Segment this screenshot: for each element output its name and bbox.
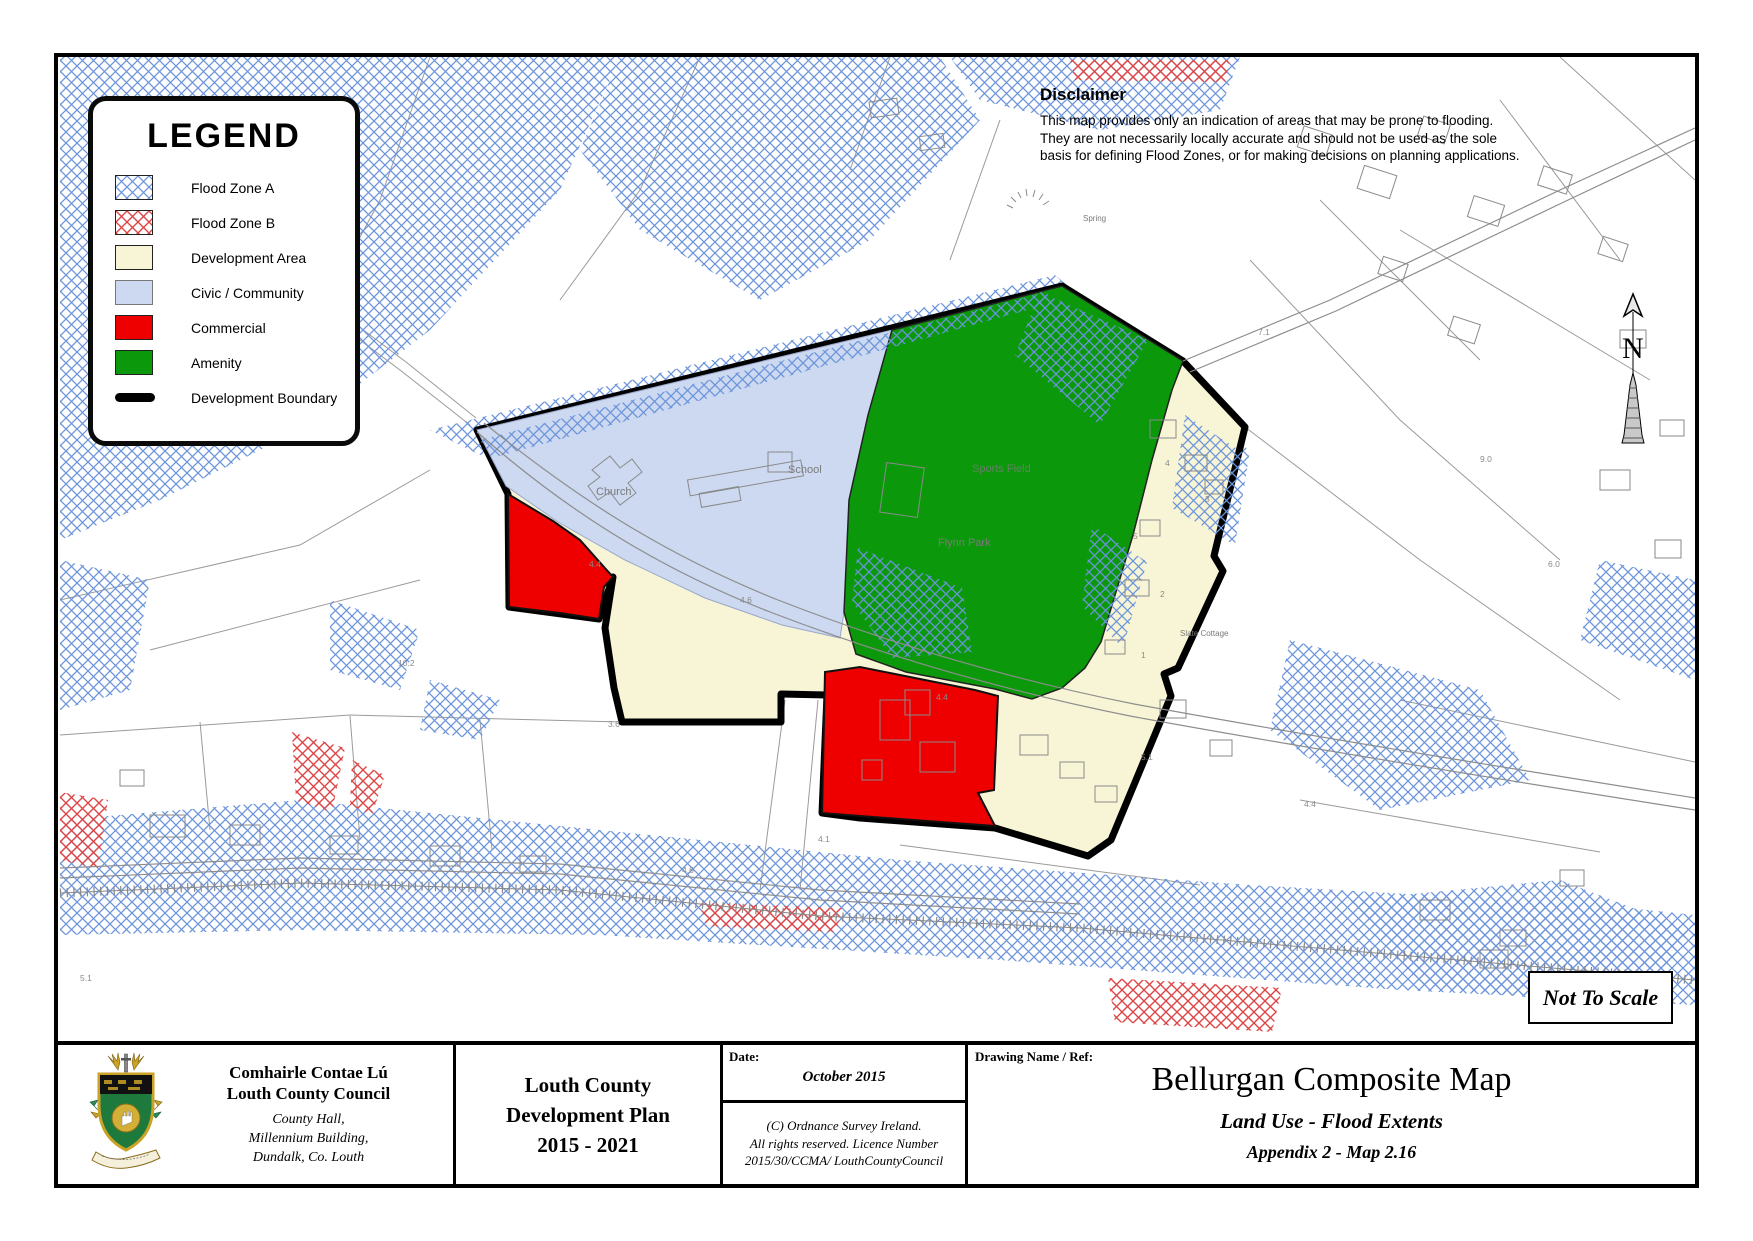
school-label: School	[788, 464, 822, 476]
legend-list: Flood Zone A Flood Zone B Development Ar…	[93, 170, 355, 415]
plan-title-line: Development Plan	[506, 1100, 670, 1130]
disclaimer-line: basis for defining Flood Zones, or for m…	[1040, 147, 1600, 165]
date-label: Date:	[729, 1049, 759, 1065]
council-name-irish: Comhairle Contae Lú	[164, 1062, 453, 1083]
spot-label: 4	[1165, 458, 1170, 468]
date-cell: Date: October 2015	[723, 1045, 965, 1100]
council-address-line: County Hall,	[164, 1110, 453, 1129]
date-panel: Date: October 2015 (C) Ordnance Survey I…	[720, 1045, 965, 1184]
map-area: Church School Sports Field Flynn Park Sl…	[58, 57, 1695, 1041]
not-to-scale-box: Not To Scale	[1528, 971, 1673, 1024]
title-block: Comhairle Contae Lú Louth County Council…	[58, 1041, 1695, 1184]
date-value: October 2015	[723, 1069, 965, 1086]
copyright-line: All rights reserved. Licence Number	[723, 1135, 965, 1153]
legend-item-development-boundary: Development Boundary	[93, 380, 355, 415]
spot-label: 5	[1133, 531, 1138, 541]
spring-label: Spring	[1083, 214, 1106, 223]
disclaimer-block: Disclaimer This map provides only an ind…	[1040, 85, 1600, 165]
spot-label: 4.4	[589, 559, 601, 569]
legend-item-amenity: Amenity	[93, 345, 355, 380]
legend-item-flood-zone-a: Flood Zone A	[93, 170, 355, 205]
spot-label: 3	[1205, 494, 1210, 504]
legend-item-commercial: Commercial	[93, 310, 355, 345]
church-label: Church	[596, 486, 631, 498]
legend-panel: LEGEND Flood Zone A Flood Zone B Develop…	[88, 96, 360, 446]
legend-item-development-area: Development Area	[93, 240, 355, 275]
not-to-scale-label: Not To Scale	[1543, 985, 1658, 1011]
spot-label: 5.1	[80, 973, 92, 983]
spot-label: 4.6	[682, 865, 694, 875]
spot-label: 4.1	[818, 834, 830, 844]
plan-panel: Louth County Development Plan 2015 - 202…	[453, 1045, 720, 1184]
crest-scroll	[92, 1150, 160, 1168]
spot-label: 5.1	[1141, 752, 1153, 762]
legend-item-label: Flood Zone B	[191, 215, 275, 231]
legend-item-label: Flood Zone A	[191, 180, 274, 196]
north-letter: N	[1622, 332, 1644, 365]
spot-label: 4.4	[936, 692, 948, 702]
flynn-park-label: Flynn Park	[938, 537, 991, 549]
legend-item-label: Development Boundary	[191, 390, 337, 406]
civic-community-swatch	[115, 280, 153, 305]
development-boundary-swatch	[115, 393, 155, 402]
drawing-ref: Appendix 2 - Map 2.16	[968, 1142, 1695, 1163]
council-text: Comhairle Contae Lú Louth County Council…	[164, 1062, 453, 1167]
map-sheet-frame: Church School Sports Field Flynn Park Sl…	[54, 53, 1699, 1188]
council-crest-logo	[88, 1052, 164, 1177]
plan-title-line: Louth County	[506, 1070, 670, 1100]
legend-item-label: Civic / Community	[191, 285, 304, 301]
plan-title-line: 2015 - 2021	[506, 1130, 670, 1160]
drawing-subtitle: Land Use - Flood Extents	[968, 1109, 1695, 1134]
spot-label: 6.0	[1548, 559, 1560, 569]
disclaimer-line: This map provides only an indication of …	[1040, 112, 1600, 130]
council-name-english: Louth County Council	[164, 1083, 453, 1104]
spot-label: 7.1	[1258, 327, 1270, 337]
legend-item-label: Development Area	[191, 250, 306, 266]
council-address: County Hall, Millennium Building, Dundal…	[164, 1110, 453, 1167]
council-address-line: Millennium Building,	[164, 1129, 453, 1148]
legend-item-civic-community: Civic / Community	[93, 275, 355, 310]
drawing-title: Bellurgan Composite Map	[968, 1061, 1695, 1099]
crest-ornaments	[108, 1053, 144, 1072]
spot-label: 9.0	[1480, 454, 1492, 464]
legend-title: LEGEND	[93, 117, 355, 156]
flood-zone-a-swatch	[115, 175, 153, 200]
disclaimer-line: They are not necessarily locally accurat…	[1040, 130, 1600, 148]
cottage-label: Slate Cottage	[1180, 629, 1229, 638]
legend-item-label: Amenity	[191, 355, 242, 371]
flood-zone-b-swatch	[115, 210, 153, 235]
disclaimer-title: Disclaimer	[1040, 85, 1600, 105]
spot-label: 10.2	[398, 658, 415, 668]
sports-field-label: Sports Field	[972, 463, 1031, 475]
development-area-swatch	[115, 245, 153, 270]
commercial-swatch	[115, 315, 153, 340]
council-panel: Comhairle Contae Lú Louth County Council…	[58, 1045, 453, 1184]
copyright-cell: (C) Ordnance Survey Ireland. All rights …	[723, 1100, 965, 1184]
plan-title: Louth County Development Plan 2015 - 202…	[506, 1070, 670, 1160]
council-address-line: Dundalk, Co. Louth	[164, 1148, 453, 1167]
spot-label: 1	[1141, 650, 1146, 660]
spot-label: 4.4	[1304, 799, 1316, 809]
spot-label: 3.6	[608, 719, 620, 729]
amenity-swatch	[115, 350, 153, 375]
copyright-line: (C) Ordnance Survey Ireland.	[723, 1117, 965, 1135]
crest-shield	[99, 1074, 153, 1150]
legend-item-flood-zone-b: Flood Zone B	[93, 205, 355, 240]
drawing-panel: Drawing Name / Ref: Bellurgan Composite …	[965, 1045, 1695, 1184]
spot-label: 2	[1160, 589, 1165, 599]
copyright-line: 2015/30/CCMA/ LouthCountyCouncil	[723, 1152, 965, 1170]
spot-label: 4.6	[740, 595, 752, 605]
legend-item-label: Commercial	[191, 320, 266, 336]
